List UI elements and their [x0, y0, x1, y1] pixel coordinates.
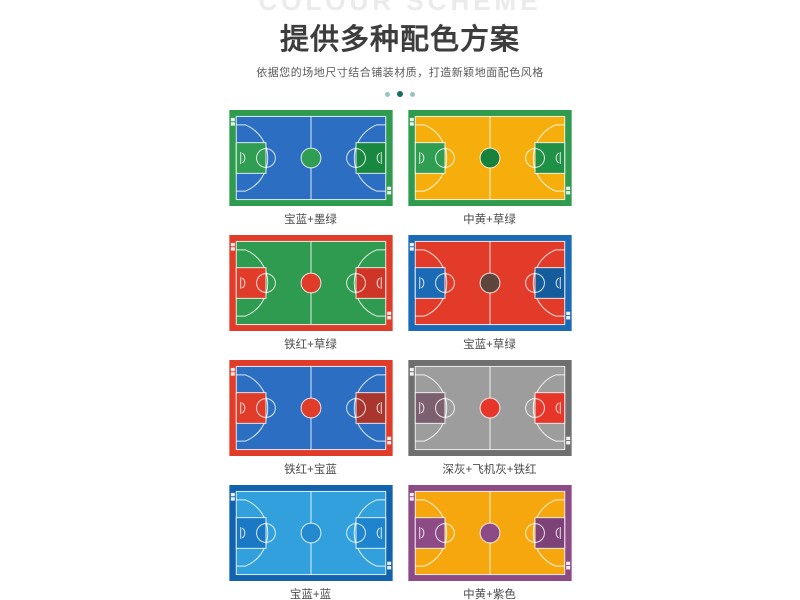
court-image	[229, 485, 393, 581]
court-label: 中黄+草绿	[408, 211, 572, 226]
divider-dots	[0, 91, 800, 97]
ghost-heading: COLOUR SCHEME	[0, 0, 800, 17]
court-label: 深灰+飞机灰+铁红	[408, 461, 572, 476]
basketball-court-svg	[408, 235, 572, 331]
court-label: 铁红+草绿	[229, 336, 393, 351]
court-card: 铁红+宝蓝	[229, 360, 393, 476]
court-label: 宝蓝+蓝	[229, 586, 393, 600]
court-card: 宝蓝+蓝	[229, 485, 393, 600]
court-image	[408, 110, 572, 206]
page: COLOUR SCHEME 提供多种配色方案 依据您的场地尺寸结合铺装材质，打造…	[0, 0, 800, 600]
court-image	[229, 235, 393, 331]
dot-icon	[385, 92, 390, 97]
basketball-court-svg	[229, 110, 393, 206]
court-image	[408, 485, 572, 581]
court-image	[408, 235, 572, 331]
court-card: 宝蓝+墨绿	[229, 110, 393, 226]
court-card: 铁红+草绿	[229, 235, 393, 351]
page-subtitle: 依据您的场地尺寸结合铺装材质，打造新颖地面配色风格	[0, 64, 800, 80]
court-image	[408, 360, 572, 456]
court-label: 铁红+宝蓝	[229, 461, 393, 476]
dot-icon	[397, 91, 403, 97]
court-card: 中黄+草绿	[408, 110, 572, 226]
basketball-court-svg	[408, 360, 572, 456]
court-label: 宝蓝+草绿	[408, 336, 572, 351]
court-label: 中黄+紫色	[408, 586, 572, 600]
header: COLOUR SCHEME 提供多种配色方案 依据您的场地尺寸结合铺装材质，打造…	[0, 0, 800, 97]
page-title: 提供多种配色方案	[0, 16, 800, 58]
court-image	[229, 110, 393, 206]
basketball-court-svg	[229, 235, 393, 331]
basketball-court-svg	[408, 110, 572, 206]
court-label: 宝蓝+墨绿	[229, 211, 393, 226]
court-card: 深灰+飞机灰+铁红	[408, 360, 572, 476]
color-scheme-grid: 宝蓝+墨绿中黄+草绿铁红+草绿宝蓝+草绿铁红+宝蓝深灰+飞机灰+铁红宝蓝+蓝中黄…	[229, 110, 572, 600]
basketball-court-svg	[229, 360, 393, 456]
court-card: 中黄+紫色	[408, 485, 572, 600]
dot-icon	[410, 92, 415, 97]
court-image	[229, 360, 393, 456]
court-card: 宝蓝+草绿	[408, 235, 572, 351]
basketball-court-svg	[229, 485, 393, 581]
basketball-court-svg	[408, 485, 572, 581]
